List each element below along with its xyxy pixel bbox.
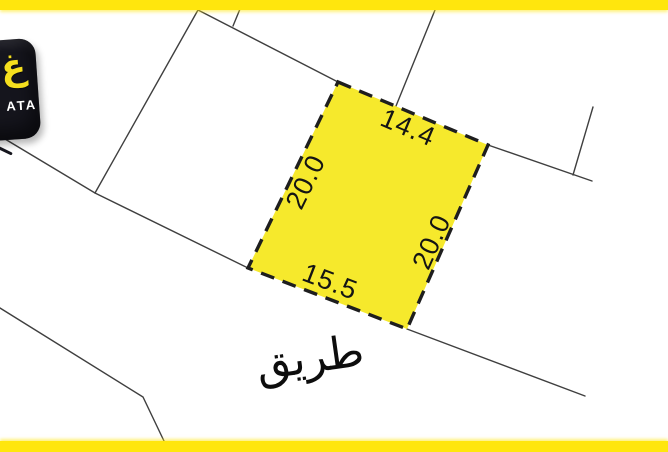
- parcel-map: 14.4 20.0 20.0 15.5 طريق غ ATA: [0, 0, 668, 452]
- parcel-map-canvas: [0, 0, 668, 452]
- plot-boundary-left: [95, 10, 198, 193]
- top-accent-stripe: [0, 0, 668, 10]
- logo-arabic-emblem: غ: [0, 46, 35, 89]
- boundary-tick: [233, 9, 240, 26]
- logo-caption: ATA: [6, 97, 38, 114]
- bottom-accent-stripe: [0, 441, 668, 452]
- plot-boundary-top: [198, 10, 338, 82]
- plot-boundary-upper-right: [396, 10, 435, 106]
- road-edge-right: [407, 329, 585, 396]
- highlighted-parcel: [248, 82, 488, 329]
- road-edge-upper: [0, 136, 248, 268]
- boundary-spur-right: [573, 107, 593, 175]
- road-edge-lower: [0, 308, 164, 441]
- logo-badge: غ ATA: [0, 38, 41, 142]
